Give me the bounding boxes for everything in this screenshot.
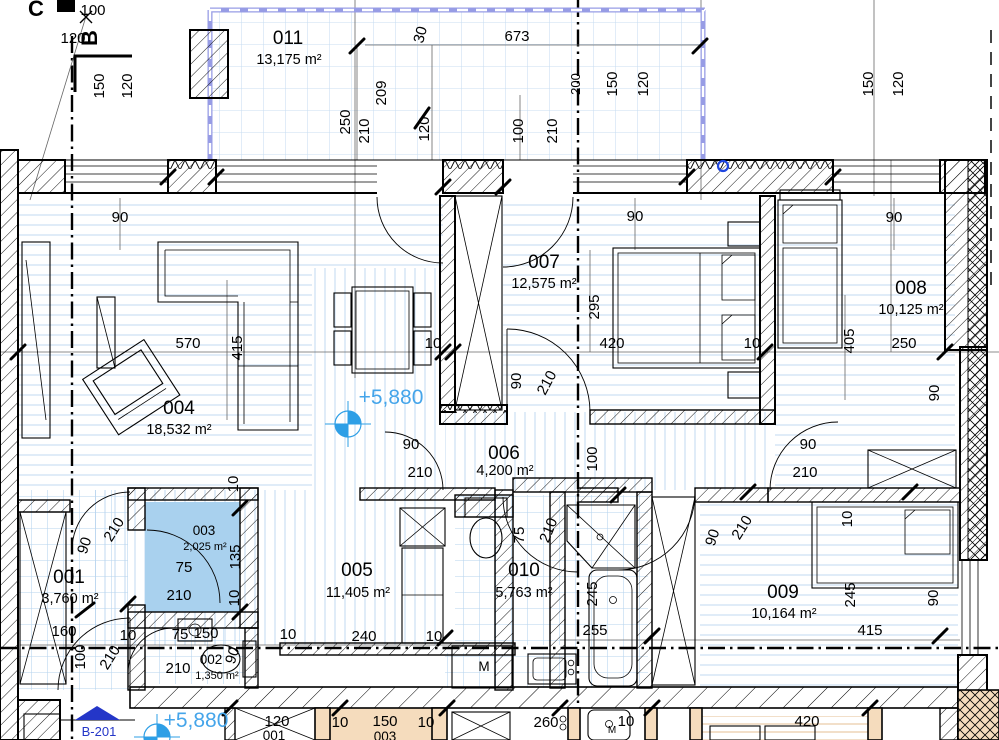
shaft-top: [455, 196, 502, 410]
wall-007-south: [590, 410, 775, 424]
dim: 120: [119, 73, 136, 98]
dim: 90: [112, 209, 129, 226]
dim: 120: [890, 71, 907, 96]
wall-bath-right-right: [637, 492, 652, 688]
room-008-number: 008: [895, 278, 927, 299]
room-001-area: 3,760 m²: [41, 591, 98, 607]
dim: 150: [860, 71, 877, 96]
window-top-4: [833, 166, 940, 182]
lw-corner-hatch: [958, 690, 999, 740]
lw-wall-7: [868, 708, 882, 740]
lw-wall-2: [315, 708, 330, 740]
room-004-area: 18,532 m²: [146, 422, 211, 438]
room-006-area: 4,200 m²: [476, 463, 533, 479]
dim: 10: [280, 626, 297, 643]
room-009-area: 10,164 m²: [751, 606, 816, 622]
wall-shaft-left: [440, 196, 455, 412]
window-top-1: [65, 166, 168, 182]
room-007-area: 12,575 m²: [511, 276, 576, 292]
floor-plan-screenshot: C B 100 120 150 120 673 250 210 209 30 1…: [0, 0, 999, 740]
room-008-area: 10,125 m²: [878, 302, 943, 318]
room-002-area: 1,350 m²: [195, 670, 239, 682]
dim: 150: [372, 713, 397, 730]
room-001-number: 001: [53, 567, 85, 588]
dim: 405: [841, 328, 858, 353]
top-wall-block-0: [18, 160, 65, 193]
room-004-number: 004: [163, 398, 195, 419]
dim: 160: [51, 623, 76, 640]
room-009-number: 009: [767, 582, 799, 603]
lw-wall-6: [690, 708, 702, 740]
wall-009-north-right: [768, 488, 960, 502]
dim: 260: [533, 714, 558, 731]
slab-band: [130, 687, 958, 708]
room-006-number: 006: [488, 443, 520, 464]
axis-block: [57, 0, 75, 12]
lw-wall-4: [568, 708, 580, 740]
room-003-number: 003: [193, 523, 216, 538]
dim: 245: [842, 582, 859, 607]
dim: 120: [635, 71, 652, 96]
lower-tap-2: [560, 724, 566, 730]
window-right: [962, 560, 978, 655]
dim: 135: [227, 544, 244, 569]
dim: 10: [744, 335, 761, 352]
dim: 210: [356, 118, 373, 143]
room-011-number: 011: [273, 28, 303, 49]
dim: 200: [568, 73, 583, 95]
dim: 10: [618, 713, 635, 730]
dim: 295: [586, 294, 603, 319]
dim: 100: [584, 446, 601, 471]
dim: 415: [229, 335, 246, 360]
dim: 420: [794, 713, 819, 730]
dim: 150: [193, 625, 218, 642]
left-outer-wall: [0, 150, 18, 740]
dim: 210: [544, 118, 561, 143]
dim: 10: [418, 714, 435, 731]
lower-tap-1: [560, 716, 566, 722]
lower-shower-x: [452, 712, 510, 740]
dim: 150: [91, 73, 108, 98]
dim: 10: [226, 590, 243, 607]
dim: 10: [120, 627, 137, 644]
dim: 10: [426, 628, 443, 645]
lower-kitchen-floor: [700, 716, 868, 740]
room-005-number: 005: [341, 560, 373, 581]
dim: 210: [166, 587, 191, 604]
dim: 100: [80, 2, 105, 19]
room-003-area: 2,025 m²: [183, 541, 227, 553]
dim: 420: [599, 335, 624, 352]
dim: 75: [176, 559, 193, 576]
insulation-cap: [440, 405, 507, 413]
balcony-column: [190, 30, 228, 98]
dim: 255: [582, 622, 607, 639]
section-triangle: [75, 706, 120, 720]
floor-plan-svg: C B 100 120 150 120 673 250 210 209 30 1…: [0, 0, 999, 740]
wall-001-north: [18, 500, 70, 512]
dim: 570: [175, 335, 200, 352]
dim: 10: [425, 335, 442, 352]
dim: 250: [337, 109, 354, 134]
dim: 245: [584, 581, 601, 606]
dim: 209: [373, 80, 390, 105]
lower-room-001-number: 001: [263, 728, 286, 740]
dim: 90: [886, 209, 903, 226]
washer-label-lower: M: [608, 725, 616, 736]
dim: 100: [510, 118, 527, 143]
room-007-number: 007: [528, 252, 560, 273]
dim: 90: [800, 436, 817, 453]
wall-009-north-mid: [695, 488, 768, 502]
section-label: B-201: [82, 724, 117, 739]
window-top-2: [216, 166, 377, 182]
insulation-band-1: [168, 160, 216, 169]
lw-wall-8: [940, 708, 958, 740]
room-010-area: 5,763 m²: [495, 585, 552, 601]
dim: 210: [792, 464, 817, 481]
room-011-area: 13,175 m²: [256, 52, 321, 68]
right-outer-wall-crosshatch: [968, 160, 987, 560]
shaft-bath: [652, 497, 695, 685]
level-text-lower: +5,880: [164, 709, 229, 732]
dim: 90: [508, 373, 525, 390]
axis-label-c: C: [28, 0, 44, 21]
dim: 250: [891, 335, 916, 352]
shaft-bath-x: [652, 497, 695, 685]
wall-003-west-a: [128, 488, 145, 530]
dim: 75: [172, 626, 189, 643]
dim: 75: [511, 527, 528, 544]
dim: 120: [416, 116, 433, 141]
dim: 240: [351, 628, 376, 645]
dim: 90: [627, 208, 644, 225]
dim: 90: [403, 436, 420, 453]
dim: 120: [60, 30, 85, 47]
dim: 90: [926, 385, 943, 402]
insulation-band-3: [687, 160, 833, 169]
dim: 150: [604, 71, 621, 96]
room-005-area: 11,405 m²: [326, 585, 390, 601]
wall-007-008: [760, 196, 775, 424]
room-010-number: 010: [508, 560, 540, 581]
insulation-band-2: [443, 160, 503, 169]
dim: 415: [857, 622, 882, 639]
dim: 673: [504, 28, 529, 45]
dim: 210: [407, 464, 432, 481]
lower-room-003-number: 003: [374, 729, 397, 740]
shaft-top-x: [455, 196, 502, 410]
dim: 10: [225, 476, 242, 493]
dim: 90: [925, 590, 942, 607]
window-top-3: [573, 166, 687, 182]
wall-corridor-south: [280, 643, 515, 655]
dim: 10: [332, 714, 349, 731]
dim: 210: [165, 660, 190, 677]
room-002-number: 002: [200, 652, 223, 667]
dim: 10: [839, 511, 856, 528]
level-text-upper: +5,880: [359, 386, 424, 409]
wall-010-north: [513, 478, 652, 492]
washer-label: М: [478, 659, 489, 674]
dim: 100: [72, 644, 89, 669]
